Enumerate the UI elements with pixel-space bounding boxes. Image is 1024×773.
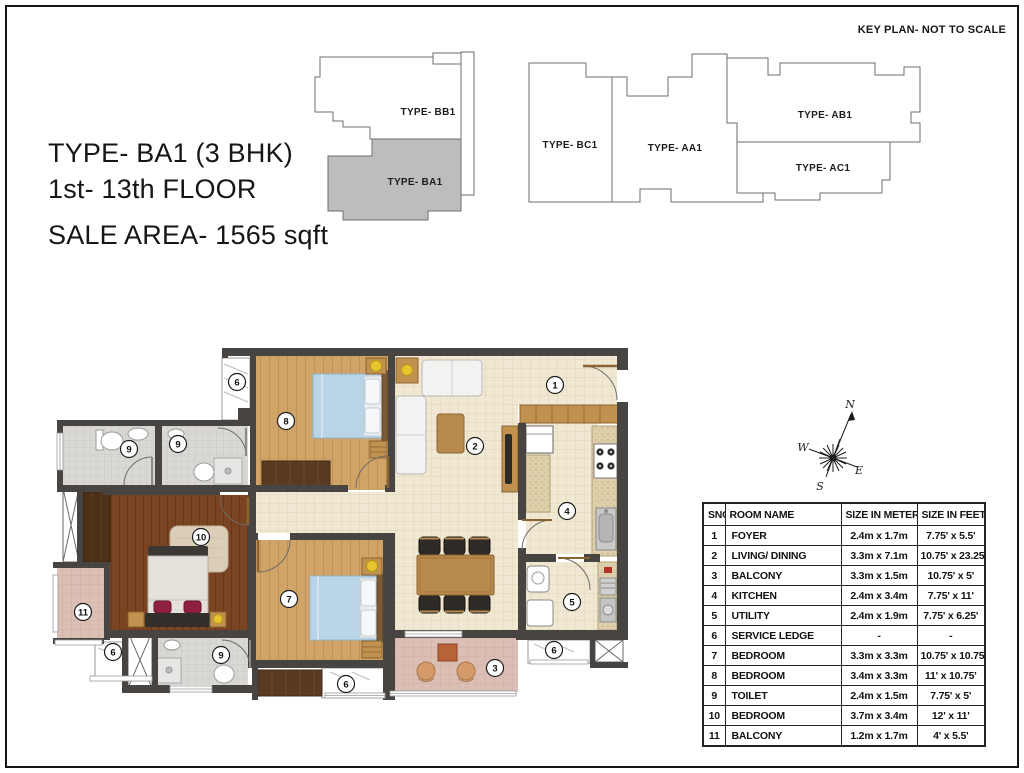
dining-table	[417, 555, 494, 595]
marker-toilet-a: 9	[126, 445, 131, 456]
keyplan-unit-ab1	[727, 58, 920, 142]
compass-rose: N W E S	[778, 393, 892, 501]
washer	[527, 600, 553, 626]
table-row: 5UTILITY2.4m x 1.9m7.75' x 6.25'	[703, 606, 985, 626]
floor-plan: 1 2 3 4 5 6 6 6 6 7 8 9 9 9 10 11	[52, 338, 632, 703]
table-row: 1FOYER2.4m x 1.7m7.75' x 5.5'	[703, 526, 985, 546]
utility-basin	[527, 566, 549, 592]
keyplan-label-ab1: TYPE- AB1	[798, 110, 853, 121]
passage-floor	[250, 492, 395, 533]
lamp-icon	[367, 561, 378, 572]
compass-w: W	[797, 441, 810, 454]
marker-toilet-b: 9	[175, 440, 180, 451]
room-size-table: SNO ROOM NAME SIZE IN METERS SIZE IN FEE…	[702, 502, 986, 747]
title-block: TYPE- BA1 (3 BHK) 1st- 13th FLOOR SALE A…	[48, 138, 328, 252]
kitchen-counter-left	[526, 455, 550, 512]
marker-kitchen: 4	[564, 507, 570, 518]
table-row: 2LIVING/ DINING3.3m x 7.1m10.75' x 23.25…	[703, 546, 985, 566]
table-row: 4KITCHEN2.4m x 3.4m7.75' x 11'	[703, 586, 985, 606]
marker-bedroom8: 8	[283, 417, 288, 428]
lamp-icon	[214, 615, 223, 624]
lamp-icon	[371, 361, 382, 372]
table-row: 6SERVICE LEDGE--	[703, 626, 985, 646]
keyplan-unit-bb1	[315, 57, 461, 139]
col-size-meters: SIZE IN METERS	[841, 503, 917, 526]
north-arrow-icon	[848, 411, 855, 421]
table-row: 10BEDROOM3.7m x 3.4m12' x 11'	[703, 706, 985, 726]
keyplan-label-bb1: TYPE- BB1	[401, 107, 456, 118]
compass-s: S	[816, 480, 824, 493]
table-header-row: SNO ROOM NAME SIZE IN METERS SIZE IN FEE…	[703, 503, 985, 526]
stove	[594, 444, 617, 478]
keyplan-label-ba1: TYPE- BA1	[388, 177, 443, 188]
marker-living: 2	[472, 442, 477, 453]
lamp-icon	[402, 365, 413, 376]
table-row: 8BEDROOM3.4m x 3.3m11' x 10.75'	[703, 666, 985, 686]
table-row: 7BEDROOM3.3m x 3.3m10.75' x 10.75'	[703, 646, 985, 666]
keyplan-tower	[433, 53, 461, 64]
balcony11-floor	[57, 567, 104, 638]
keyplan-label-ac1: TYPE- AC1	[796, 163, 851, 174]
dining-set	[417, 537, 494, 613]
table-row: 11BALCONY1.2m x 1.7m4' x 5.5'	[703, 726, 985, 747]
marker-ledge-b: 6	[110, 648, 115, 659]
marker-ledge-d: 6	[551, 646, 556, 657]
table-row: 9TOILET2.4m x 1.5m7.75' x 5'	[703, 686, 985, 706]
keyplan-label-aa1: TYPE- AA1	[648, 143, 703, 154]
marker-balcony11: 11	[78, 608, 89, 619]
fridge	[526, 426, 553, 453]
room-table-body: 1FOYER2.4m x 1.7m7.75' x 5.5'2LIVING/ DI…	[703, 526, 985, 747]
col-size-feet: SIZE IN FEET	[917, 503, 985, 526]
marker-ledge-c: 6	[343, 680, 348, 691]
plan-type-title: TYPE- BA1 (3 BHK)	[48, 138, 328, 170]
marker-balcony3: 3	[492, 664, 497, 675]
compass-n: N	[844, 398, 855, 411]
keyplan-unit-bc1	[529, 63, 612, 202]
marker-utility: 5	[569, 598, 575, 609]
marker-toilet-c: 9	[218, 651, 223, 662]
floor-range: 1st- 13th FLOOR	[48, 174, 328, 206]
keyplan-label-bc1: TYPE- BC1	[543, 140, 598, 151]
table-row: 3BALCONY3.3m x 1.5m10.75' x 5'	[703, 566, 985, 586]
key-plan: TYPE- BB1 TYPE- BA1 TYPE- BC1 TYPE- AA1 …	[300, 28, 940, 243]
col-sno: SNO	[703, 503, 725, 526]
keyplan-shaft	[461, 52, 474, 195]
col-room-name: ROOM NAME	[725, 503, 841, 526]
marker-bedroom10: 10	[196, 533, 207, 544]
sale-area: SALE AREA- 1565 sqft	[48, 220, 328, 252]
marker-ledge-a: 6	[234, 378, 239, 389]
marker-foyer: 1	[552, 381, 558, 392]
kitchen-upper-counter	[520, 405, 618, 423]
marker-bedroom7: 7	[286, 595, 291, 606]
coffee-table	[437, 414, 464, 453]
planter-ledge	[258, 670, 322, 696]
compass-e: E	[854, 464, 863, 477]
